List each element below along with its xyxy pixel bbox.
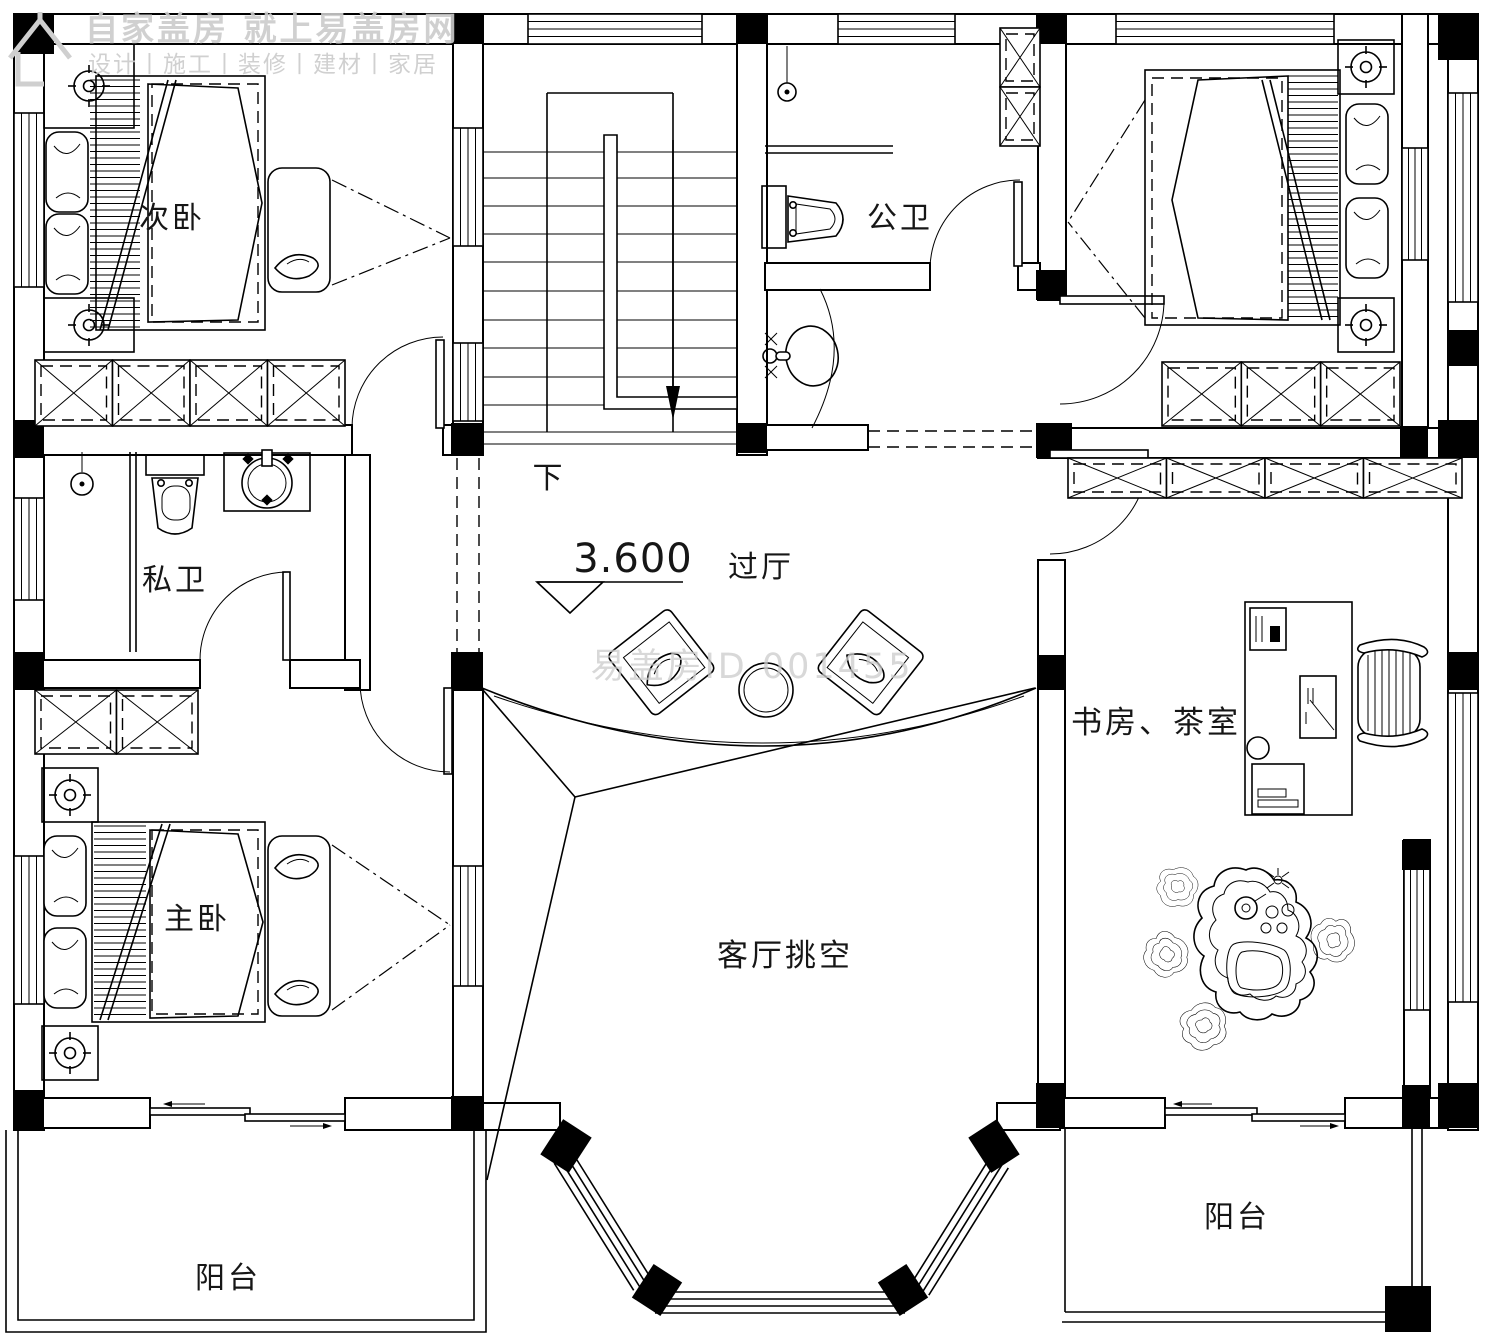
tea-table-rocks bbox=[1135, 868, 1357, 1057]
wardrobe-cell bbox=[35, 360, 113, 426]
wardrobe-cell bbox=[190, 360, 268, 426]
room-label-secondary-bedroom: 次卧 bbox=[139, 201, 205, 236]
room-guest-bedroom bbox=[1068, 40, 1394, 352]
window-icon bbox=[453, 343, 483, 421]
wardrobe-cell bbox=[1321, 362, 1400, 426]
wardrobe-cell bbox=[1167, 458, 1266, 498]
bench bbox=[268, 836, 330, 1016]
room-label-public-bath: 公卫 bbox=[867, 201, 933, 236]
window-icon bbox=[1404, 866, 1430, 1010]
hallway-seating bbox=[482, 608, 1036, 1180]
wardrobe-cell bbox=[113, 360, 191, 426]
room-label-hallway: 过厅 bbox=[728, 550, 794, 585]
pillow bbox=[44, 928, 86, 1008]
wardrobe-cell bbox=[117, 690, 199, 754]
window-icon bbox=[14, 498, 44, 600]
pillow bbox=[46, 132, 88, 212]
side-table bbox=[1252, 764, 1304, 814]
floorplan-canvas: 次卧 公卫 私卫 主卧 书房、茶室 过厅 客厅挑空 阳台 阳台 下 3.600 … bbox=[0, 0, 1500, 1337]
wardrobe-cell bbox=[1162, 362, 1241, 426]
wardrobe-cell bbox=[1241, 362, 1320, 426]
room-master-bedroom bbox=[42, 768, 450, 1080]
room-label-balcony-right: 阳台 bbox=[1204, 1200, 1270, 1235]
watermark-brand-line2: 设计丨施工丨装修丨建材丨家居 bbox=[88, 52, 438, 78]
room-label-private-bath: 私卫 bbox=[142, 563, 208, 598]
wash-basin bbox=[224, 450, 310, 511]
stairs-direction-label: 下 bbox=[533, 461, 566, 496]
window-icon bbox=[14, 113, 44, 287]
room-label-living-void: 客厅挑空 bbox=[717, 938, 853, 974]
window-icon bbox=[838, 14, 955, 44]
toilet bbox=[762, 186, 843, 248]
stair-handrail bbox=[604, 135, 737, 409]
sliding-door-master-balcony bbox=[150, 1101, 345, 1129]
window-icon bbox=[1448, 693, 1478, 1002]
teapot-icon bbox=[1235, 897, 1257, 919]
window-icon bbox=[453, 128, 483, 246]
wardrobe-cell bbox=[1364, 458, 1463, 498]
desk bbox=[1245, 602, 1352, 815]
pillow bbox=[44, 836, 86, 916]
wardrobe-cell bbox=[35, 690, 117, 754]
bench bbox=[268, 168, 330, 292]
lamp-icon bbox=[49, 1032, 91, 1074]
lamp-icon bbox=[68, 304, 110, 346]
door-public-bath bbox=[930, 180, 1022, 268]
pillow bbox=[1346, 198, 1388, 278]
wash-basin bbox=[763, 289, 844, 428]
floorplan-screenshot: 次卧 公卫 私卫 主卧 书房、茶室 过厅 客厅挑空 阳台 阳台 下 3.600 … bbox=[0, 0, 1500, 1337]
toilet bbox=[146, 455, 204, 534]
monitor-icon bbox=[1300, 676, 1336, 738]
room-label-balcony-left: 阳台 bbox=[195, 1261, 261, 1296]
window-icon bbox=[14, 856, 44, 1004]
room-private-bath bbox=[71, 450, 310, 652]
pillow bbox=[46, 214, 88, 294]
wardrobe-cell bbox=[1068, 458, 1167, 498]
stool bbox=[1247, 737, 1269, 759]
lamp-icon bbox=[1345, 46, 1387, 88]
door-master-bedroom bbox=[360, 682, 452, 774]
lamp-icon bbox=[1345, 304, 1387, 346]
watermark-brand-line1: 自家盖房 就上易盖房网 bbox=[85, 9, 460, 48]
elevation-value: 3.600 bbox=[573, 536, 693, 582]
room-label-master-bedroom: 主卧 bbox=[164, 902, 230, 937]
watermark-center-id: 易盖房ID 001455 bbox=[590, 647, 913, 687]
room-study-tea bbox=[1135, 602, 1427, 1057]
sliding-door-study-balcony bbox=[1165, 1101, 1345, 1129]
door-private-bath bbox=[200, 572, 290, 660]
window-icon bbox=[1402, 148, 1428, 260]
window-icon bbox=[1116, 14, 1334, 44]
room-label-study-tea: 书房、茶室 bbox=[1071, 705, 1241, 741]
flower-icon bbox=[1267, 868, 1289, 888]
lamp-icon bbox=[49, 774, 91, 816]
window-icon bbox=[453, 866, 483, 986]
door-secondary-bedroom bbox=[352, 337, 444, 428]
wardrobe-cell bbox=[1000, 28, 1040, 87]
pillow bbox=[1346, 104, 1388, 184]
staircase bbox=[483, 93, 737, 444]
wardrobe-cell bbox=[1000, 87, 1040, 146]
office-chair bbox=[1358, 639, 1428, 746]
window-icon bbox=[528, 14, 702, 44]
room-public-bath bbox=[762, 46, 893, 428]
bay-window bbox=[540, 1119, 1019, 1316]
window-icon bbox=[1448, 93, 1478, 302]
elevation-marker bbox=[537, 582, 683, 613]
door-guest-bedroom bbox=[1060, 296, 1164, 404]
wardrobe-cell bbox=[268, 360, 346, 426]
wardrobe-cell bbox=[1265, 458, 1364, 498]
balcony-left-structure bbox=[6, 1130, 486, 1332]
room-secondary-bedroom bbox=[44, 44, 450, 352]
